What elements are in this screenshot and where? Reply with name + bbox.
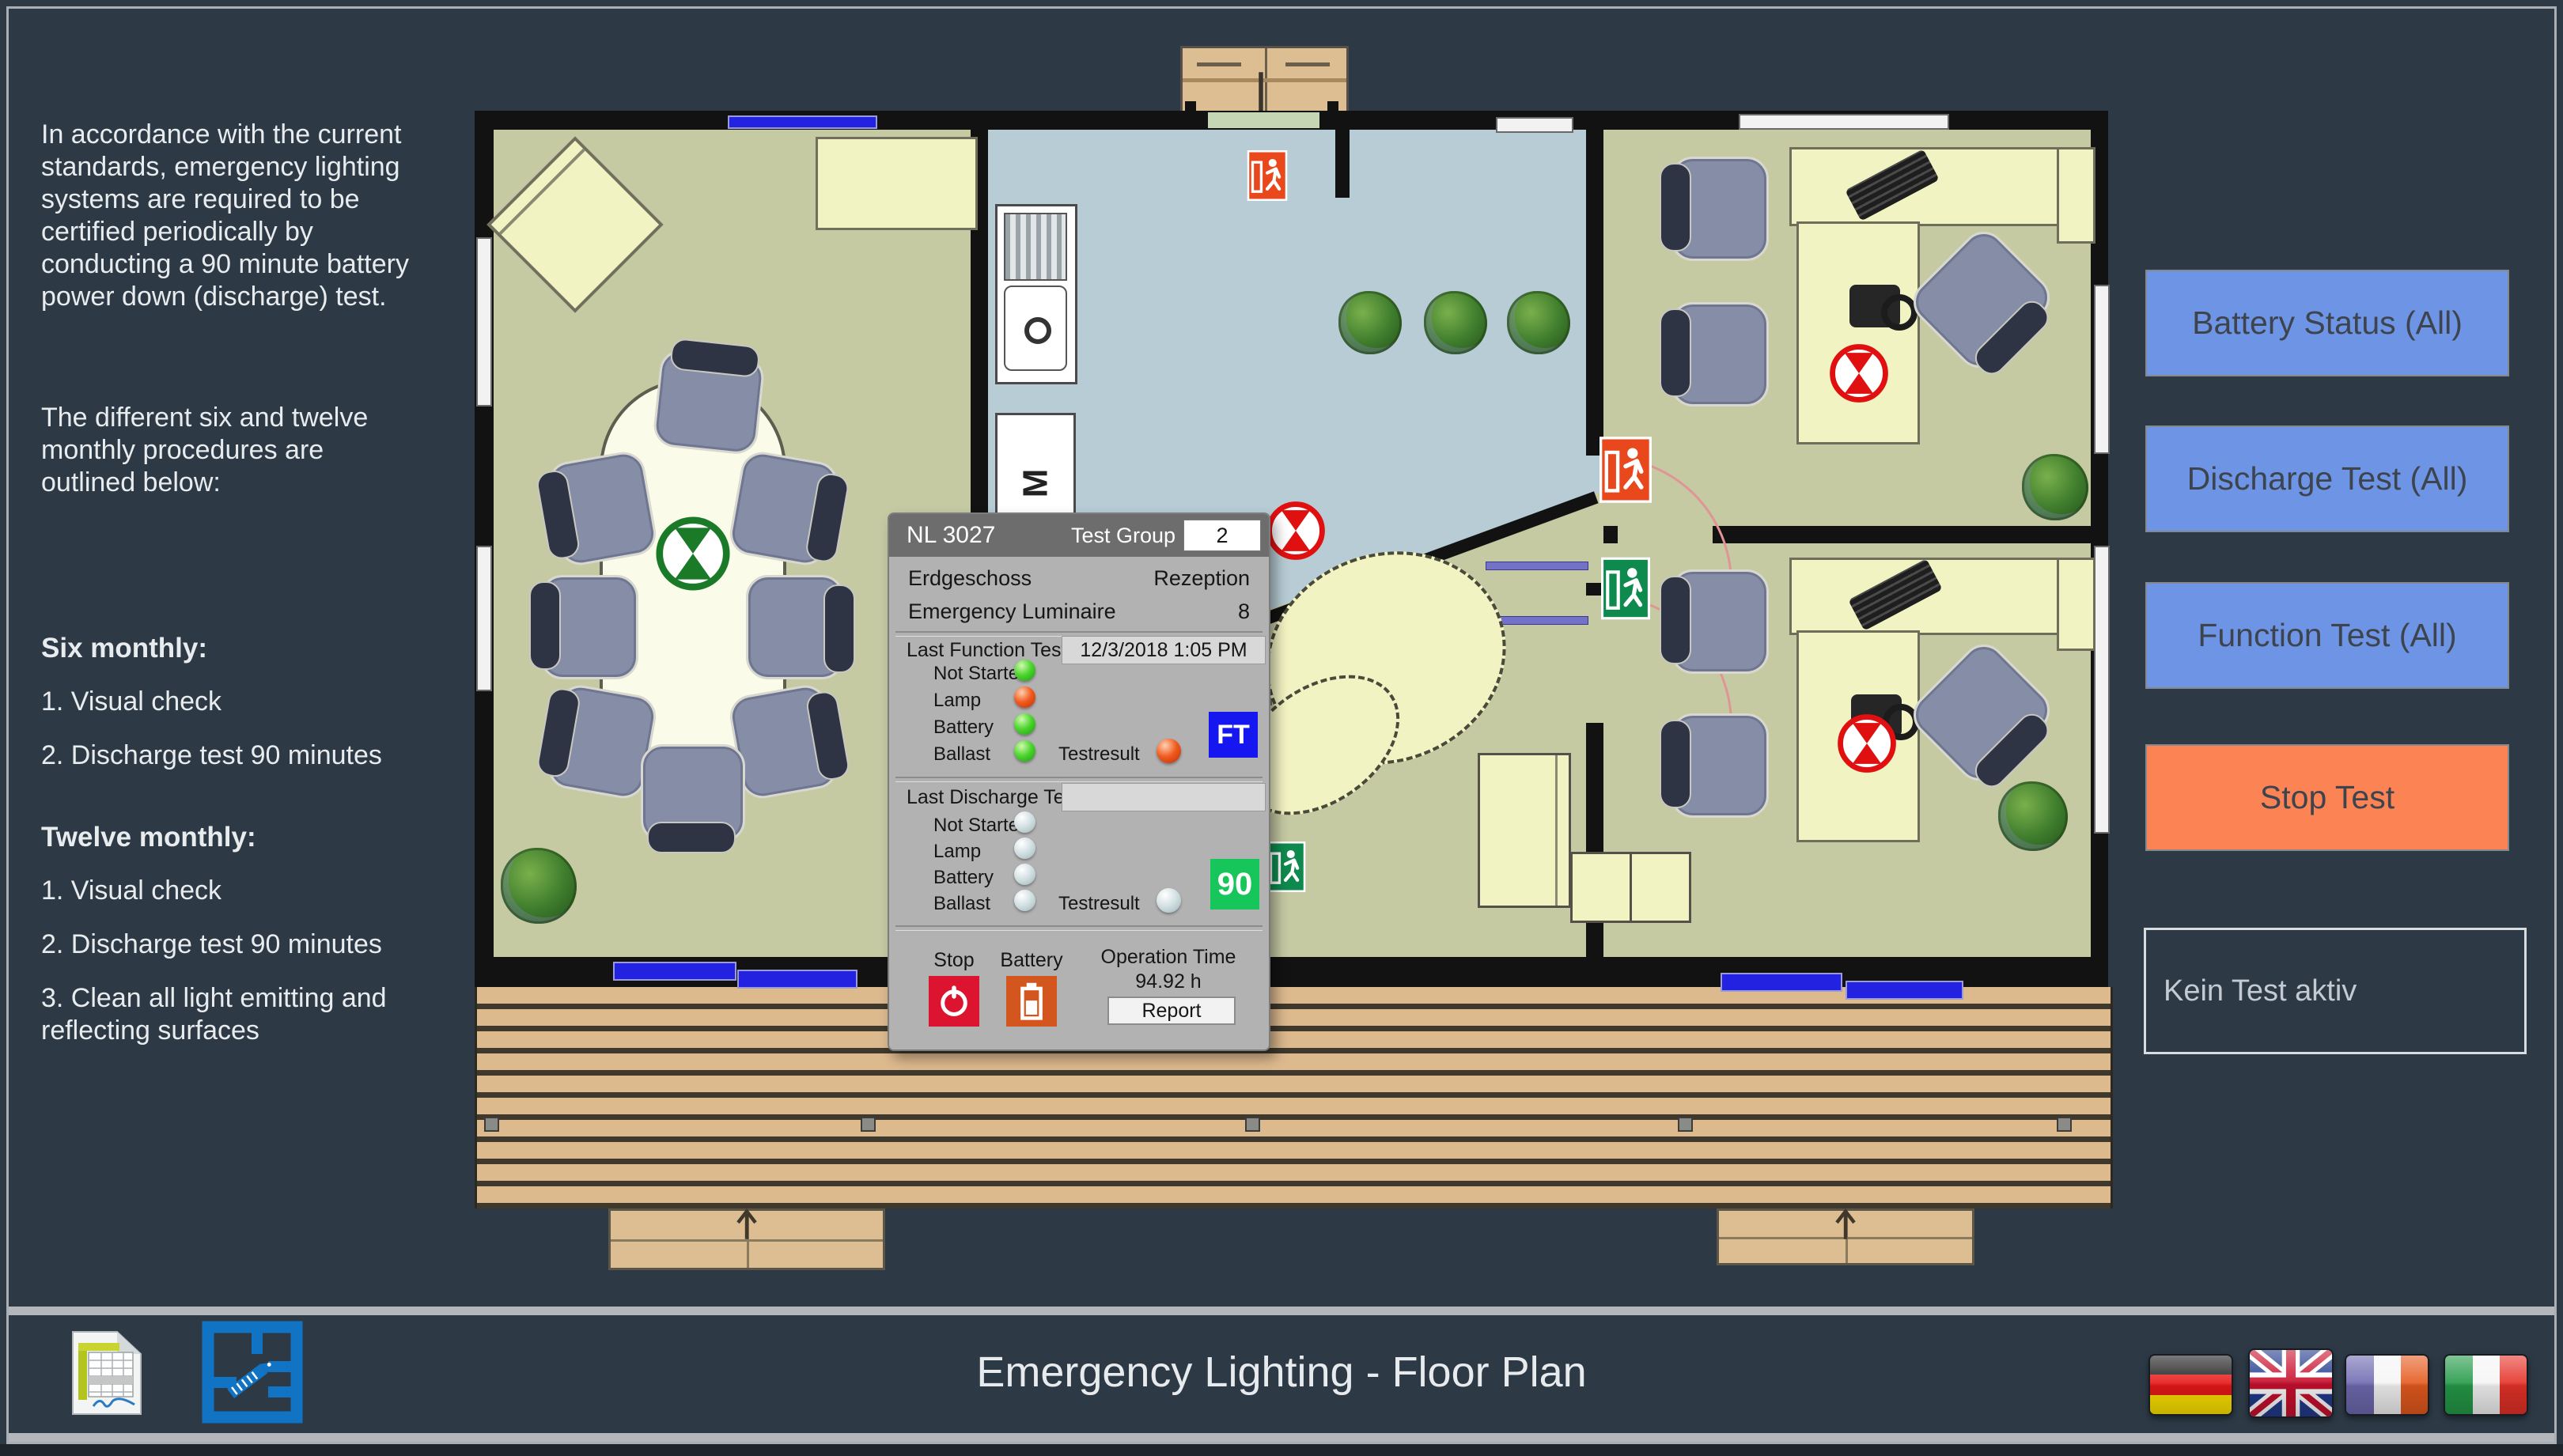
terrace-deck	[475, 987, 2113, 1208]
up-arrow-icon	[729, 1206, 764, 1241]
stove-label: M	[1016, 469, 1055, 498]
luminaire-marker-fault[interactable]	[1829, 343, 1889, 403]
status-row-label: Ballast	[933, 743, 990, 766]
window	[476, 237, 492, 407]
stop-label: Stop	[921, 949, 987, 972]
floor-name: Erdgeschoss	[908, 566, 1032, 591]
battery-status-all-button[interactable]: Battery Status (All)	[2145, 270, 2509, 376]
testresult-led-red	[1157, 739, 1181, 763]
window	[1739, 114, 1949, 130]
sideboard	[816, 137, 978, 230]
chair	[652, 347, 766, 456]
chair	[726, 448, 841, 569]
discharge-test-label: Last Discharge Test	[907, 786, 1080, 809]
separator	[9, 1433, 2554, 1442]
twelve-monthly-item: 2. Discharge test 90 minutes	[41, 928, 419, 961]
bottom-edge	[0, 1444, 2563, 1456]
testresult-label: Testresult	[1058, 743, 1140, 766]
wall	[1586, 128, 1603, 456]
luminaire-type-label: Emergency Luminaire	[908, 599, 1116, 624]
deck-fastener	[2057, 1117, 2072, 1132]
chair	[746, 575, 844, 679]
window	[1721, 973, 1842, 992]
function-test-label: Last Function Test	[907, 639, 1066, 662]
operation-time-label: Operation Time	[1096, 946, 1240, 969]
exit-sign-orange[interactable]	[1246, 150, 1289, 201]
divider	[895, 777, 1263, 782]
six-monthly-title: Six monthly:	[41, 632, 419, 664]
window	[1846, 981, 1963, 1000]
status-row-label: Ballast	[933, 893, 990, 915]
app-window: In accordance with the current standards…	[0, 0, 2563, 1456]
cabinet	[1630, 852, 1691, 923]
desk	[1796, 221, 1920, 444]
luminaire-marker-ok[interactable]	[655, 516, 731, 592]
deck-fastener	[861, 1117, 876, 1132]
window	[613, 962, 736, 981]
window	[728, 115, 877, 129]
operation-time-value: 94.92 h	[1096, 970, 1240, 993]
window	[2094, 546, 2110, 834]
window	[737, 970, 857, 989]
desk-phone	[1849, 285, 1900, 327]
stop-test-button-global[interactable]: Stop Test	[2145, 744, 2509, 851]
terrace-steps	[608, 1208, 885, 1270]
chair	[540, 575, 638, 679]
kitchen-sink-unit	[995, 204, 1077, 384]
cabinet	[1478, 753, 1571, 908]
status-led-red	[1014, 686, 1035, 708]
info-paragraph: In accordance with the current standards…	[41, 119, 419, 313]
deck-fastener	[1245, 1117, 1260, 1132]
battery-icon	[1017, 981, 1046, 1021]
chair	[1671, 569, 1769, 674]
deck-fastener	[1678, 1117, 1693, 1132]
room-name: Rezeption	[1153, 566, 1250, 591]
dialog-title: NL 3027	[907, 522, 995, 549]
plant	[1338, 291, 1402, 354]
power-icon	[937, 984, 971, 1019]
plant	[1507, 291, 1570, 354]
status-led-gray	[1014, 838, 1035, 859]
up-arrow-icon	[1828, 1206, 1863, 1241]
desk	[2057, 147, 2095, 244]
plant	[2022, 454, 2088, 520]
separator	[9, 1307, 2554, 1315]
chair	[1671, 302, 1769, 407]
sidelight-window	[1486, 562, 1588, 570]
status-led-green	[1014, 660, 1035, 681]
window	[1496, 117, 1573, 133]
status-row-label: Battery	[933, 867, 994, 889]
wall	[1713, 526, 2091, 543]
desk	[2057, 558, 2095, 651]
entrance-doorway	[1208, 112, 1319, 128]
status-led-gray	[1014, 864, 1035, 885]
exit-sign-orange[interactable]	[1600, 437, 1652, 503]
chair	[1671, 157, 1769, 261]
function-test-badge[interactable]: FT	[1209, 712, 1258, 758]
testresult-led-gray	[1157, 888, 1181, 913]
plant	[501, 848, 577, 924]
chair	[1671, 713, 1769, 818]
exit-sign-green[interactable]	[1601, 557, 1650, 620]
info-paragraph: The different six and twelve monthly pro…	[41, 402, 419, 499]
test-status-box: Kein Test aktiv	[2144, 928, 2527, 1054]
status-led-green	[1014, 713, 1035, 735]
plant	[1998, 781, 2068, 851]
status-row-label: Lamp	[933, 841, 981, 863]
dialog-titlebar[interactable]: NL 3027 Test Group 2	[889, 514, 1269, 557]
twelve-monthly-item: 3. Clean all light emitting and reflecti…	[41, 982, 419, 1047]
window	[476, 546, 492, 691]
testresult-label: Testresult	[1058, 893, 1140, 915]
discharge-test-badge[interactable]: 90	[1210, 859, 1259, 910]
wall	[1335, 128, 1350, 198]
test-group-label: Test Group	[1071, 524, 1175, 548]
report-button[interactable]: Report	[1107, 997, 1236, 1025]
twelve-monthly-title: Twelve monthly:	[41, 821, 419, 853]
function-test-all-button[interactable]: Function Test (All)	[2145, 582, 2509, 689]
status-led-gray	[1014, 890, 1035, 911]
window	[2094, 285, 2110, 454]
status-led-gray	[1014, 811, 1035, 833]
flag-italian[interactable]	[2444, 1354, 2528, 1416]
deck-fastener	[484, 1117, 499, 1132]
status-row-label: Battery	[933, 717, 994, 739]
luminaire-dialog: NL 3027 Test Group 2 Erdgeschoss Rezepti…	[888, 512, 1270, 1051]
stop-test-button[interactable]	[929, 976, 979, 1027]
six-monthly-item: 2. Discharge test 90 minutes	[41, 739, 419, 772]
cabinet	[1570, 852, 1632, 923]
status-led-green	[1014, 740, 1035, 762]
status-row-label: Lamp	[933, 690, 981, 712]
test-status-text: Kein Test aktiv	[2164, 974, 2357, 1008]
discharge-test-date[interactable]	[1062, 783, 1266, 811]
divider	[895, 925, 1263, 931]
six-monthly-item: 1. Visual check	[41, 686, 419, 718]
function-test-date[interactable]: 12/3/2018 1:05 PM	[1062, 636, 1266, 664]
info-panel: In accordance with the current standards…	[41, 119, 419, 1047]
terrace-steps	[1717, 1208, 1974, 1265]
test-group-input[interactable]: 2	[1183, 520, 1261, 551]
luminaire-marker-fault[interactable]	[1837, 713, 1897, 773]
plant	[1424, 291, 1487, 354]
luminaire-count: 8	[1238, 599, 1250, 624]
luminaire-marker-fault[interactable]	[1266, 501, 1326, 561]
chair	[544, 448, 659, 569]
flag-english[interactable]	[2248, 1348, 2334, 1418]
chair	[641, 744, 745, 842]
flag-german[interactable]	[2148, 1354, 2233, 1416]
battery-label: Battery	[992, 949, 1071, 972]
battery-test-button[interactable]	[1006, 976, 1057, 1027]
twelve-monthly-item: 1. Visual check	[41, 875, 419, 907]
flag-french[interactable]	[2345, 1354, 2429, 1416]
discharge-test-all-button[interactable]: Discharge Test (All)	[2145, 425, 2509, 532]
